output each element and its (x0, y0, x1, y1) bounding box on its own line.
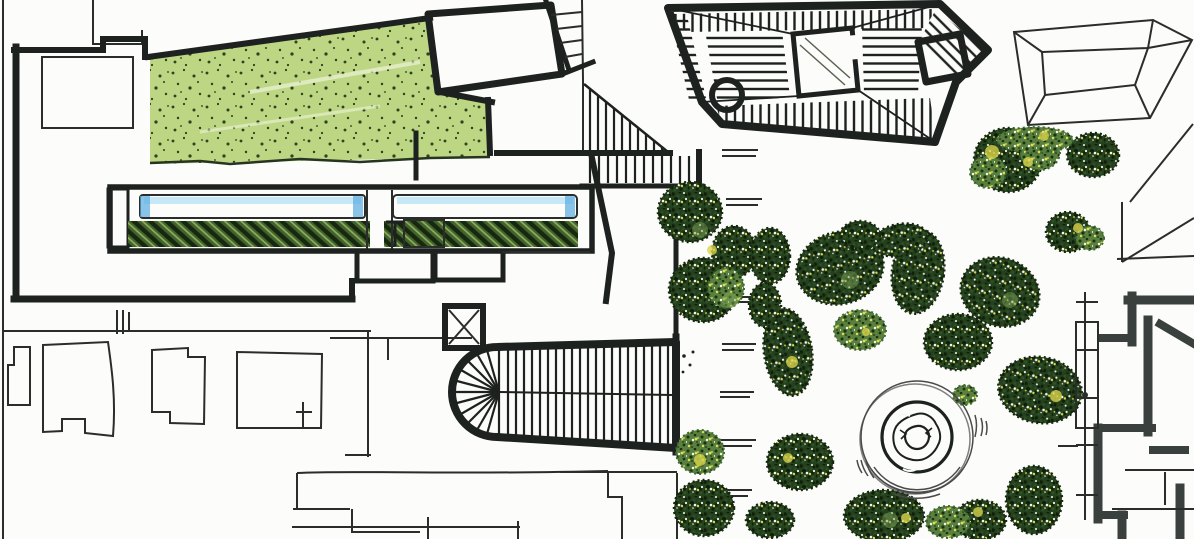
site-plan-canvas (0, 0, 1194, 539)
courtyard-light-square (834, 35, 858, 61)
lawn-east-wall (488, 100, 490, 153)
planting-bed-west (128, 221, 370, 247)
roof-band-inner-east (862, 25, 922, 94)
bed-kiosk-hatch (406, 222, 422, 245)
